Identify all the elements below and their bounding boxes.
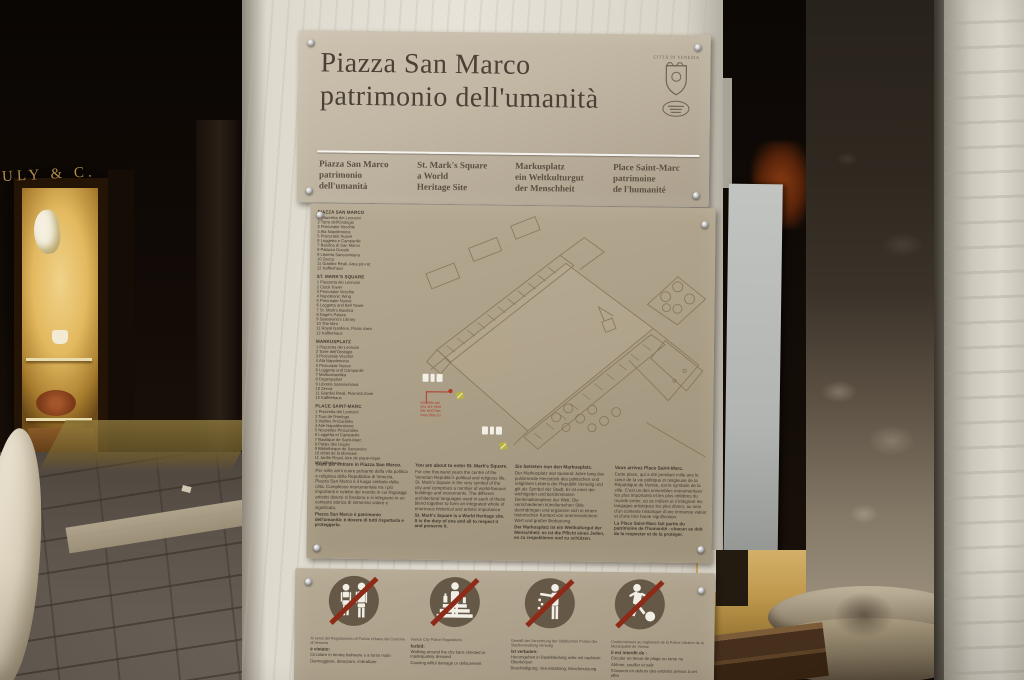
- screw-icon: [698, 587, 705, 594]
- rule-item: Circolare in tenuta balneare o a torso n…: [310, 652, 405, 658]
- no-swimwear-icon: [328, 575, 381, 628]
- rule-item: S'asseoir en dehors des endroits prévus …: [611, 669, 706, 680]
- subtitle-row: Piazza San Marcopatrimoniodell'umanità S…: [319, 158, 703, 196]
- sign-title-line2: patrimonio dell'umanità: [320, 79, 650, 116]
- column-base-stain: [834, 592, 894, 638]
- rules-german: Gemäß der Verordnung der Städtischen Pol…: [510, 639, 606, 680]
- paragraph-intro: State per entrare in Piazza San Marco.: [315, 461, 408, 468]
- screw-icon: [308, 39, 315, 46]
- rule-item: Circuler en tenue de plage ou torse nu: [611, 656, 706, 662]
- sign-header-plate: Piazza San Marco patrimonio dell'umanità…: [297, 30, 711, 207]
- paragraph-intro: Sie betreten nun den Markusplatz.: [515, 464, 608, 471]
- paragraph-intro: You are about to enter St. Mark's Square…: [415, 463, 508, 470]
- no-littering-icon: [524, 577, 577, 630]
- paragraph-intro: Vous arrivez Place Saint-Marc.: [615, 465, 708, 472]
- heritage-sign-board: Piazza San Marco patrimonio dell'umanità…: [279, 16, 724, 680]
- rule-note: Ai sensi del Regolamento di Polizia Urba…: [310, 636, 405, 646]
- shop-shelf: [26, 358, 92, 361]
- venice-crest: CITTÀ DI VENEZIA: [652, 54, 701, 129]
- monument-lists: PIAZZA SAN MARCO 1 Piazzetta dei Leoncin…: [314, 209, 419, 470]
- list-italian: 1 Piazzetta dei Leoncini2 Torre dell'Oro…: [317, 215, 420, 271]
- leaning-grey-board: [723, 184, 783, 587]
- rules-french: Conformément au règlement de la Police U…: [611, 640, 707, 680]
- subtitle-line: der Menschheit: [515, 183, 605, 195]
- column-mottling: [806, 0, 944, 612]
- prohibition-icons-row: [294, 574, 715, 635]
- venice-crest-icon: [654, 59, 699, 120]
- rules-english: Venice City Police Regulations forbid: W…: [410, 638, 506, 679]
- paragraph-bold: La Place Saint-Marc fait partie du patri…: [614, 520, 707, 537]
- dark-doorway: [716, 550, 748, 606]
- screw-icon: [317, 211, 324, 218]
- screw-icon: [306, 187, 313, 194]
- glass-cup: [52, 330, 68, 344]
- screw-icon: [693, 192, 700, 199]
- you-are-here-text: voi siete quiyou are hereSie sind hiervo…: [420, 401, 480, 435]
- paragraph-german: Sie betreten nun den Markusplatz. Der Ma…: [514, 464, 608, 541]
- paragraph-english: You are about to enter St. Mark's Square…: [414, 463, 508, 540]
- no-picnic-on-steps-icon: [429, 576, 482, 629]
- rule-item: Walking around the city bare-chested or …: [410, 649, 505, 660]
- glass-plate: [36, 390, 76, 416]
- list-french: 1 Piazzetta dei Leoncini2 Tour de l'Horl…: [315, 410, 418, 466]
- screw-icon: [305, 578, 312, 585]
- paragraph-bold: Der Markusplatz ist ein Weltkulturgut de…: [514, 524, 607, 541]
- list-english: 1 Piazzetta dei Leoncini2 Clock Tower3 P…: [316, 280, 419, 336]
- subtitle-italian: Piazza San Marcopatrimoniodell'umanità: [319, 158, 409, 192]
- paragraph-body: Per mille anni cuore pulsante della vita…: [315, 468, 408, 511]
- you-are-here-line: vous êtes ici: [420, 413, 480, 418]
- column-streaks: [944, 0, 1024, 680]
- rule-item: Herumgehen in Badekleidung oder mit nack…: [511, 655, 606, 666]
- venice-arcade-photo: ULY & C. Piazza San Marco patrimonio del…: [0, 0, 1024, 680]
- header-divider-line: [317, 150, 699, 157]
- screw-icon: [697, 546, 704, 553]
- rule-item: Beschädigung, Verunstaltung, Beschmutzun…: [511, 666, 606, 672]
- paragraph-bold: Piazza San Marco è patrimonio dell'umani…: [315, 511, 408, 528]
- subtitle-french: Place Saint-Marcpatrimoinede l'humanité: [613, 162, 703, 196]
- subtitle-german: Markusplatzein Weltkulturgutder Menschhe…: [515, 161, 605, 195]
- subtitle-line: dell'umanità: [319, 180, 409, 192]
- sign-rules-plate: Ai sensi del Regolamento di Polizia Urba…: [294, 568, 716, 680]
- no-ball-games-icon: [614, 578, 667, 631]
- paragraph-body: Der Markusplatz war tausend Jahre lang d…: [514, 470, 607, 524]
- paragraph-body: Cette place, qui a été pendant mille ans…: [614, 472, 707, 520]
- subtitle-line: Heritage Site: [417, 182, 507, 194]
- paragraph-bold: St. Mark's Square is a World Heritage si…: [415, 513, 508, 530]
- rules-text-columns: Ai sensi del Regolamento di Polizia Urba…: [310, 636, 707, 680]
- rules-italian: Ai sensi del Regolamento di Polizia Urba…: [310, 636, 406, 677]
- rule-item: Danneggiare, deturpare, imbrattare: [310, 659, 405, 665]
- pillar-edge-sliver: [723, 78, 732, 188]
- warm-floor-reflection: [38, 420, 258, 472]
- sign-main-plate: PIAZZA SAN MARCO 1 Piazzetta dei Leoncin…: [306, 203, 715, 563]
- paragraph-italian: State per entrare in Piazza San Marco. P…: [315, 461, 409, 538]
- sign-title: Piazza San Marco patrimonio dell'umanità: [320, 46, 651, 116]
- screw-icon: [695, 44, 702, 51]
- intro-paragraphs: State per entrare in Piazza San Marco. P…: [314, 461, 707, 561]
- rule-note: Conformément au règlement de la Police U…: [611, 640, 706, 650]
- paragraph-body: For one thousand years the centre of the…: [415, 469, 508, 512]
- subtitle-english: St. Mark's Squarea WorldHeritage Site: [417, 160, 507, 194]
- rule-note: Venice City Police Regulations: [411, 638, 506, 643]
- list-item: 12 Kaffeehaus: [317, 266, 419, 272]
- subtitle-line: de l'humanité: [613, 184, 703, 196]
- screw-icon: [313, 544, 320, 551]
- screw-icon: [701, 221, 708, 228]
- list-item: 12 Kaffeehaus: [315, 395, 417, 401]
- paragraph-french: Vous arrivez Place Saint-Marc. Cette pla…: [614, 465, 708, 542]
- sign-title-line1: Piazza San Marco: [320, 46, 650, 83]
- list-german: 1 Piazzetta dei Leoncini2 Torre dell'Oro…: [315, 345, 418, 401]
- rule-note: Gemäß der Verordnung der Städtischen Pol…: [511, 639, 606, 649]
- list-item: 12 Kaffeehaus: [316, 331, 418, 337]
- rule-item: Causing wilful damage or defacement: [410, 660, 505, 666]
